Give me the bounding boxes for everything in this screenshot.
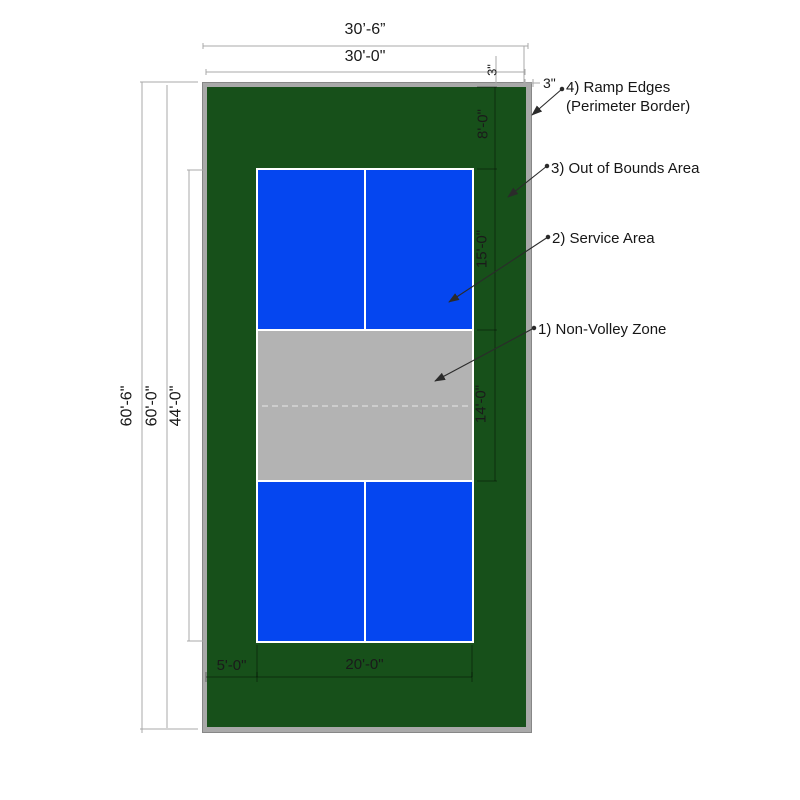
service-area-bottom-right (366, 482, 472, 641)
callout-ramp-edges: 4) Ramp Edges (Perimeter Border) (566, 78, 690, 116)
dim-overall-length-label: 60'-6" (119, 386, 136, 427)
callout-ramp-edges-line1: 4) Ramp Edges (566, 78, 690, 97)
non-volley-zone (258, 331, 472, 480)
dim-side-margin-label: 5'-0" (206, 657, 257, 674)
dim-border-top-label: 3" (484, 64, 501, 76)
dim-nvz-label: 14'-0" (473, 385, 490, 423)
service-area-bottom-left (258, 482, 364, 641)
service-area-top-left (258, 170, 364, 329)
dim-service-area-label: 15'-0" (474, 230, 491, 268)
pickleball-court-diagram: 30’-6” 30'-0" 60'-6" 60'-0" 44'-0" 8'-0"… (0, 0, 800, 800)
net-dashed-line (262, 405, 468, 407)
dim-lined-court-length-label: 44'-0" (168, 386, 185, 427)
callout-ramp-edges-line2: (Perimeter Border) (566, 97, 690, 116)
dim-overall-width-label: 30’-6” (265, 21, 465, 38)
callout-non-volley-zone: 1) Non-Volley Zone (538, 320, 666, 339)
service-area-top-right (366, 170, 472, 329)
dim-end-zone-label: 8'-0" (475, 109, 492, 139)
callout-service-area: 2) Service Area (552, 229, 655, 248)
dim-playing-width-label: 30'-0" (265, 48, 465, 65)
dim-playing-length-label: 60'-0" (144, 386, 161, 427)
dim-border-side-label: 3" (543, 75, 556, 92)
callout-out-of-bounds: 3) Out of Bounds Area (551, 159, 699, 178)
playing-court (256, 168, 474, 643)
dim-lined-court-width-label: 20'-0" (257, 656, 472, 673)
